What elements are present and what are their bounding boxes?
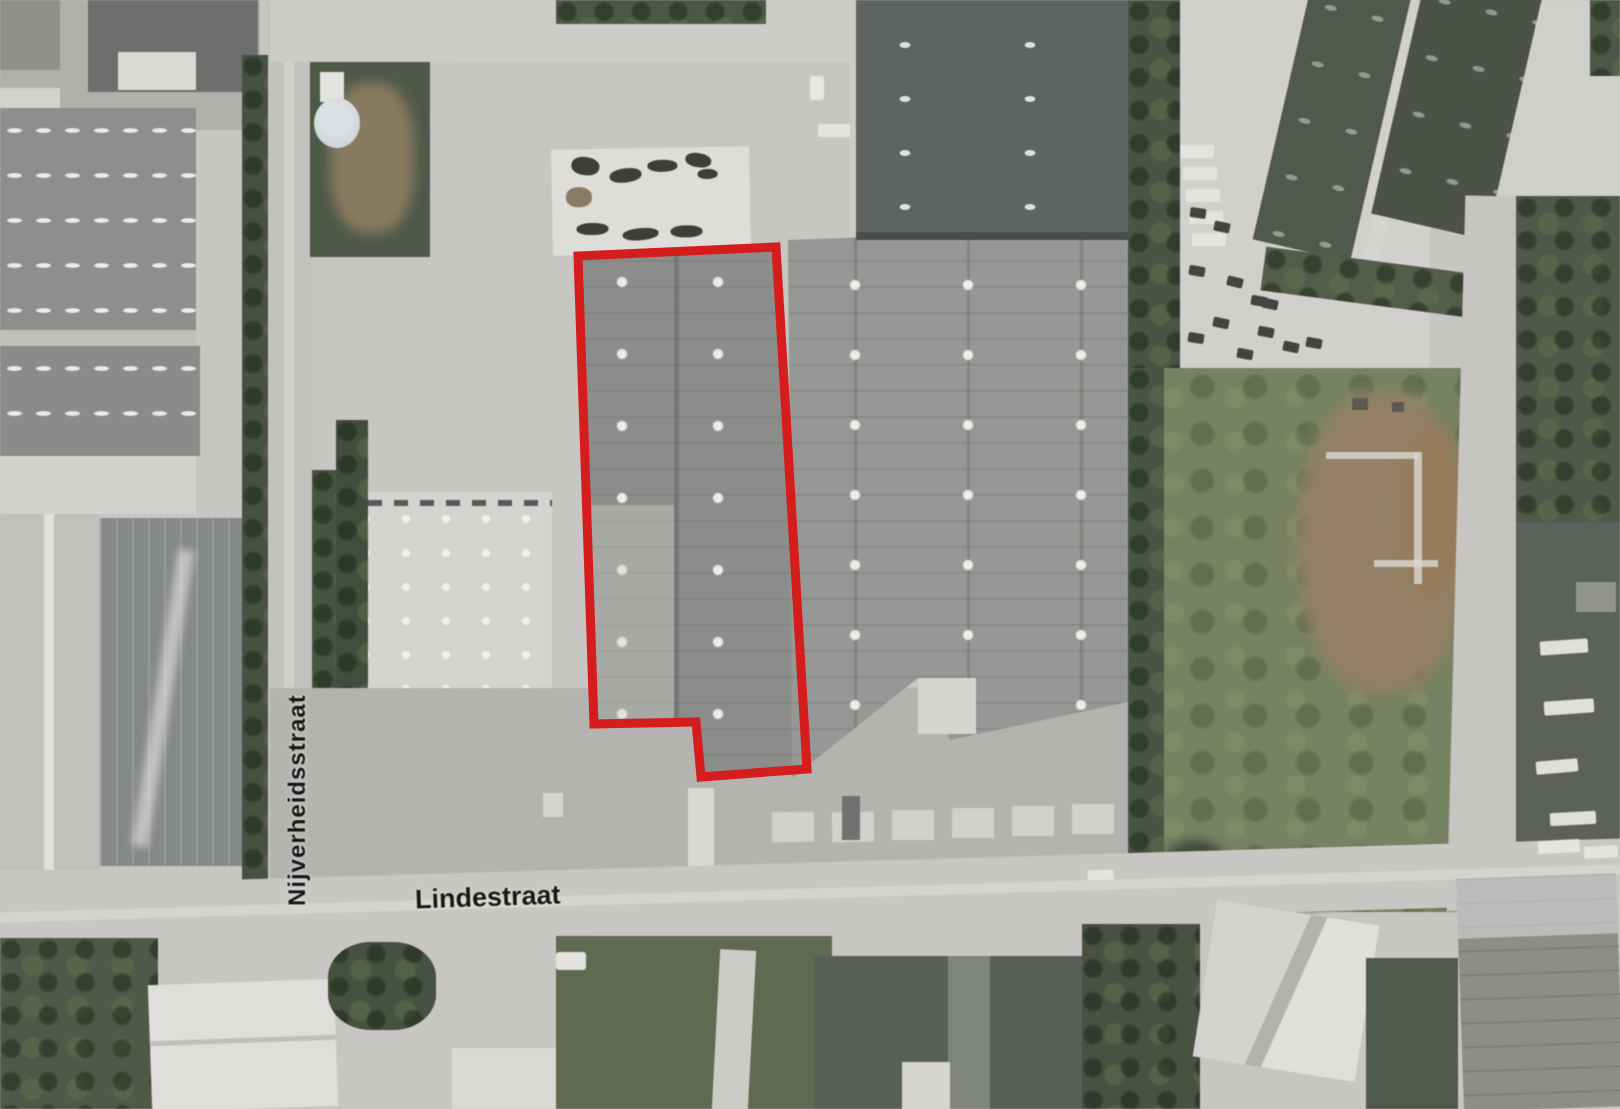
stored-material <box>609 167 642 185</box>
street-label-vertical: Nijverheidsstraat <box>284 644 312 906</box>
building-roof <box>0 456 196 514</box>
parked-truck <box>1584 845 1619 859</box>
tree-belt <box>1516 196 1620 526</box>
aerial-photo: Lindestraat Nijverheidsstraat <box>0 0 1620 1109</box>
warehouse-roof-dark <box>814 956 1082 1109</box>
shed <box>1385 616 1462 674</box>
building-roof <box>0 0 60 70</box>
field-path <box>1326 452 1418 459</box>
parked-car <box>1257 326 1275 339</box>
parked-trailer <box>1183 167 1217 180</box>
parked-car <box>810 76 824 100</box>
white-gabled-building <box>1193 900 1380 1082</box>
tree-clump <box>328 942 436 1030</box>
roof-notch <box>918 678 976 734</box>
building-roof <box>0 514 100 870</box>
roof-section-light <box>582 505 674 723</box>
parked-car <box>1213 220 1231 233</box>
stored-material <box>570 156 600 177</box>
parked-car <box>556 952 586 970</box>
parked-truck <box>1538 839 1581 854</box>
path <box>712 949 756 1109</box>
parked-trailer <box>1180 145 1214 158</box>
driveway <box>0 330 196 346</box>
tree-line <box>556 0 766 24</box>
parked-car <box>1236 348 1253 361</box>
stored-material <box>670 225 702 238</box>
tree-belt <box>1082 924 1200 1109</box>
storage-tank <box>314 98 360 148</box>
parked-trailer <box>1192 233 1226 246</box>
storage-yard <box>551 146 751 255</box>
stored-material <box>697 169 717 179</box>
field-structure <box>1352 398 1368 410</box>
warehouse-roof <box>0 346 200 456</box>
roof-edge <box>856 232 1128 240</box>
tree-line <box>1128 368 1164 912</box>
loading-dock <box>1012 806 1054 836</box>
tree-clump <box>1590 0 1620 76</box>
building-roof <box>1366 958 1458 1109</box>
stored-material <box>647 160 677 173</box>
roof-light <box>1576 582 1616 612</box>
roof-reflection <box>132 549 195 848</box>
parked-truck <box>842 796 860 840</box>
building-roof <box>118 52 196 90</box>
parked-truck <box>1544 698 1595 715</box>
parked-car <box>1188 265 1205 278</box>
lawn <box>0 938 158 1109</box>
street-label-lindestraat: Lindestraat <box>415 879 562 915</box>
stored-material <box>684 151 712 169</box>
loading-dock <box>952 808 994 838</box>
parked-car <box>1187 332 1204 344</box>
white-building <box>148 979 338 1109</box>
loading-bay <box>543 793 563 817</box>
warehouse-roof <box>0 108 196 330</box>
tree-line <box>336 420 368 702</box>
terrain-layer <box>0 0 1620 1109</box>
stored-material <box>622 227 659 242</box>
warehouse-roof <box>1456 873 1620 1109</box>
roof-light <box>902 1062 950 1109</box>
roof-light <box>1456 873 1618 939</box>
parked-car <box>1212 316 1230 329</box>
parked-truck <box>1536 758 1579 775</box>
white-roof-building <box>368 492 552 698</box>
building-roof <box>1516 522 1620 862</box>
parked-car <box>1282 340 1300 353</box>
roof-ridge <box>150 1035 336 1046</box>
field-structure <box>1392 402 1404 412</box>
parked-car <box>1261 297 1279 310</box>
tree-line <box>242 55 268 905</box>
warehouse-roof-dark <box>856 0 1128 240</box>
parked-car <box>1189 207 1206 219</box>
parked-trailer <box>1186 189 1220 202</box>
tree-belt <box>1128 0 1180 372</box>
parking-strip <box>430 62 456 254</box>
lawn <box>556 936 832 1109</box>
roof-seam <box>948 956 990 1109</box>
parked-truck <box>1540 638 1589 655</box>
loading-dock <box>892 810 934 840</box>
roof-edge <box>368 500 552 506</box>
parked-car <box>1305 337 1322 350</box>
parked-truck <box>1550 811 1597 826</box>
field-path <box>1374 560 1438 567</box>
stored-material <box>576 223 608 236</box>
loading-dock <box>1072 804 1114 834</box>
road-marking <box>1087 870 1113 881</box>
stored-material <box>566 187 592 207</box>
roof-ridge <box>44 514 54 870</box>
parked-car <box>1226 275 1244 289</box>
roof-seam <box>674 248 679 778</box>
loading-dock <box>772 812 815 843</box>
warehouse-roof <box>345 258 533 494</box>
